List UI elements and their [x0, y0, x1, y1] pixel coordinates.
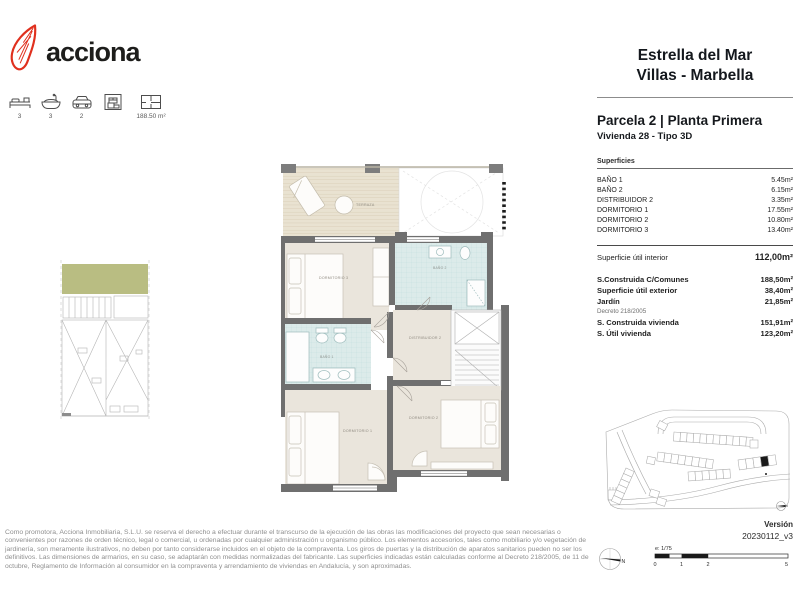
room-dormitorio1: DORMITORIO 1	[285, 390, 387, 492]
parking-count: 2	[80, 113, 84, 121]
decree-value: 123,20m²	[760, 328, 793, 339]
room-label: DORMITORIO 3	[597, 226, 648, 236]
north-arrow-icon: N	[598, 545, 626, 573]
project-title: Estrella del Mar Villas - Marbella	[597, 46, 793, 87]
room-value: 5.45m²	[771, 176, 793, 186]
label-terraza: TERRAZA	[356, 203, 375, 207]
table-row: DORMITORIO 2 10.80m²	[597, 216, 793, 226]
stat-bedrooms: 3	[4, 93, 35, 121]
room-value: 3.35m²	[771, 196, 793, 206]
summary-row: S.Construida C/Comunes 188,50m²	[597, 274, 793, 285]
room-value: 13.40m²	[767, 226, 793, 236]
scale-label: e: 1/75	[655, 546, 672, 552]
car-icon	[70, 93, 94, 111]
label-dormitorio2: DORMITORIO 2	[409, 416, 438, 420]
label-distribuidor2: DISTRIBUIDOR 2	[409, 336, 441, 340]
houses	[611, 420, 776, 506]
void-patio	[399, 168, 503, 236]
title-divider	[597, 97, 793, 98]
interior-value: 112,00m²	[755, 252, 793, 262]
interior-total-row: Superficie útil interior 112,00m²	[597, 252, 793, 263]
room-value: 17.55m²	[767, 206, 793, 216]
table-row: DORMITORIO 3 13.40m²	[597, 226, 793, 236]
label-bano2: BAÑO 2	[433, 265, 447, 270]
stairs	[451, 310, 501, 390]
decree-value: 151,91m²	[760, 317, 793, 328]
summary-value: 188,50m²	[760, 274, 793, 285]
scale-tick-2: 2	[707, 562, 710, 568]
map-north-arrow-icon	[777, 502, 789, 511]
scale-tick-5: 5	[785, 562, 788, 568]
label-bano1: BAÑO 1	[320, 354, 334, 359]
summary-label: S.Construida C/Comunes	[597, 274, 689, 285]
summary-label: Jardín	[597, 296, 620, 307]
scale-tick-0: 0	[654, 562, 657, 568]
info-panel: Estrella del Mar Villas - Marbella Parce…	[597, 46, 793, 339]
roof-plan	[62, 320, 148, 416]
scale-bar: e: 1/75 0 1 2 5	[651, 543, 793, 571]
project-title-line1: Estrella del Mar	[597, 46, 793, 66]
plot-title: Parcela 2 | Planta Primera	[597, 113, 793, 128]
summary-value: 21,85m²	[765, 296, 793, 307]
decree-row: S. Construida vivienda 151,91m²	[597, 317, 793, 328]
table-row: BAÑO 2 6.15m²	[597, 186, 793, 196]
interior-label: Superficie útil interior	[597, 253, 668, 263]
stat-area: 188.50 m²	[128, 93, 174, 121]
room-bano1: BAÑO 1	[285, 324, 371, 384]
bedrooms-count: 3	[18, 113, 22, 121]
entry-step	[62, 413, 71, 416]
version-value: 20230112_v3	[640, 531, 793, 541]
summary-value: 38,40m²	[765, 285, 793, 296]
legal-disclaimer: Como promotora, Acciona Inmobiliaria, S.…	[5, 529, 597, 571]
bathrooms-count: 3	[49, 113, 53, 121]
garden-area	[62, 264, 148, 294]
room-bano2: BAÑO 2	[395, 243, 487, 310]
label-dormitorio3: DORMITORIO 3	[319, 276, 348, 280]
room-label: BAÑO 2	[597, 186, 623, 196]
brand-name: acciona	[46, 37, 140, 68]
decree-label: S. Construida vivienda	[597, 317, 679, 328]
surfaces-heading: Superficies	[597, 158, 793, 169]
property-stats: 3 3 2	[4, 93, 174, 121]
decree-note: Decreto 218/2005	[597, 307, 793, 317]
decree-label: S. Útil vivienda	[597, 328, 651, 339]
room-dormitorio3: DORMITORIO 3	[283, 243, 389, 330]
room-label: DISTRIBUIDOR 2	[597, 196, 653, 206]
bathtub-icon	[39, 93, 63, 111]
room-label: DORMITORIO 2	[597, 216, 648, 226]
scale-tick-1: 1	[680, 562, 683, 568]
pergola-deck	[63, 296, 148, 318]
compass-letter: N	[622, 559, 626, 565]
decree-row: S. Útil vivienda 123,20m²	[597, 328, 793, 339]
label-dormitorio1: DORMITORIO 1	[343, 429, 372, 433]
built-area-value: 188.50 m²	[136, 113, 165, 121]
acciona-logo: acciona	[8, 22, 140, 74]
table-row: DORMITORIO 1 17.55m²	[597, 206, 793, 216]
stat-parking: 2	[66, 93, 97, 121]
table-row: DISTRIBUIDOR 2 3.35m²	[597, 196, 793, 206]
summary-row: Superficie útil exterior 38,40m²	[597, 285, 793, 296]
room-distribuidor2: DISTRIBUIDOR 2	[393, 310, 451, 380]
summary-row: Jardín 21,85m²	[597, 296, 793, 307]
table-row: BAÑO 1 5.45m²	[597, 176, 793, 186]
version-block: Versión 20230112_v3	[640, 520, 793, 541]
version-label: Versión	[640, 520, 793, 529]
mini-roof-plan	[60, 260, 152, 422]
surfaces-room-table: BAÑO 1 5.45m² BAÑO 2 6.15m² DISTRIBUIDOR…	[597, 176, 793, 236]
acciona-leaf-icon	[8, 22, 44, 74]
table-divider	[597, 245, 793, 246]
summary-rows: S.Construida C/Comunes 188,50m² Superfic…	[597, 274, 793, 339]
room-label: BAÑO 1	[597, 176, 623, 186]
unit-marker-dot	[765, 473, 767, 475]
site-location-map	[600, 402, 793, 518]
unit-subtitle: Vivienda 28 - Tipo 3D	[597, 131, 793, 142]
room-value: 6.15m²	[771, 186, 793, 196]
bed-icon	[8, 93, 32, 111]
room-value: 10.80m²	[767, 216, 793, 226]
room-label: DORMITORIO 1	[597, 206, 648, 216]
floor-plan: TERRAZA	[281, 162, 509, 498]
floorplan-icon	[139, 93, 163, 111]
storage-icon	[102, 93, 124, 111]
plan-sheet: acciona 3 3 2	[0, 0, 800, 600]
summary-label: Superficie útil exterior	[597, 285, 677, 296]
stat-bathrooms: 3	[35, 93, 66, 121]
stat-storage	[97, 93, 128, 121]
project-title-line2: Villas - Marbella	[597, 66, 793, 86]
